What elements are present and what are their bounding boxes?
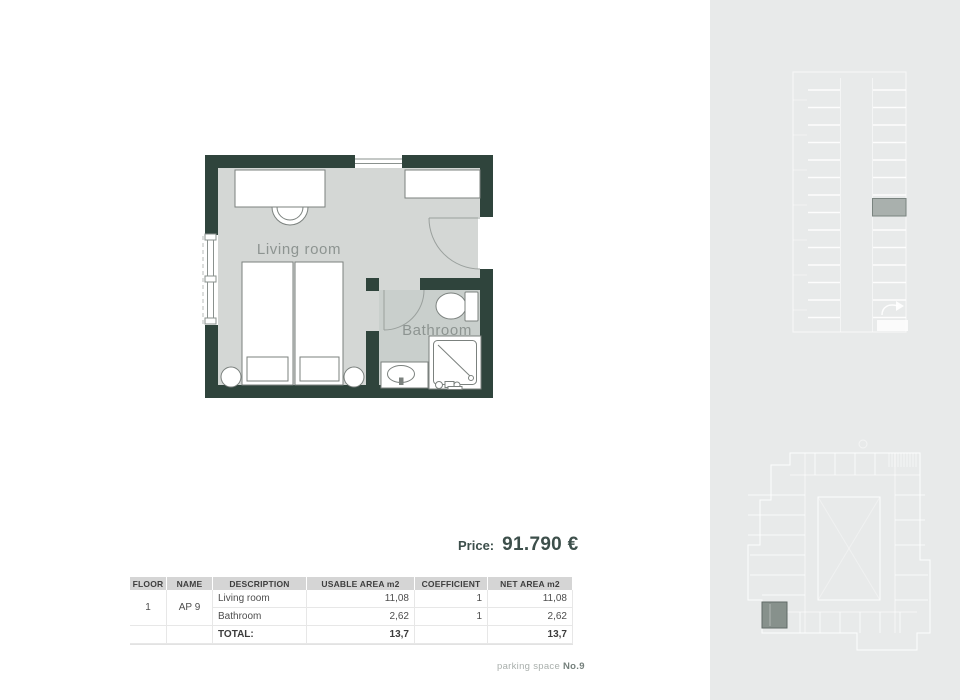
pillow-2	[300, 357, 339, 381]
col-header-coefficient: COEFFICIENT	[415, 577, 488, 590]
minimap-stairs-hatch	[889, 453, 916, 467]
highlighted-parking-space	[873, 199, 907, 217]
wardrobe	[405, 170, 480, 198]
sidebar	[710, 0, 960, 700]
bathroom-label: Bathroom	[402, 322, 472, 339]
cell-description: Living room	[213, 590, 307, 608]
parking-stalls-left	[808, 90, 840, 318]
cell-apartment: AP 9	[167, 590, 213, 626]
cell-usable-area: 11,08	[307, 590, 415, 608]
cell-total-net: 13,7	[488, 626, 573, 644]
cell-usable-area: 2,62	[307, 608, 415, 626]
cell-empty	[167, 626, 213, 644]
highlighted-unit	[762, 602, 787, 628]
cell-net-area: 2,62	[488, 608, 573, 626]
building-minimap	[735, 430, 955, 660]
cell-empty	[130, 626, 167, 644]
col-header-net-area: NET AREA m2	[488, 577, 573, 590]
nightstand-left	[221, 367, 241, 387]
parking-space-caption: parking space No.9	[497, 661, 585, 672]
pillow-1	[247, 357, 288, 381]
apartment-floor-plan: Living room Bathroom	[190, 138, 510, 408]
nightstand-right	[344, 367, 364, 387]
entrance-arrow-icon	[882, 301, 904, 315]
cell-net-area: 11,08	[488, 590, 573, 608]
col-header-usable-area: USABLE AREA m2	[307, 577, 415, 590]
living-room-label: Living room	[257, 241, 341, 258]
parking-lot-diagram	[780, 60, 920, 345]
price-value: 91.790 €	[502, 534, 578, 556]
cell-empty	[415, 626, 488, 644]
shower	[429, 336, 481, 390]
parking-space-label: parking space	[497, 661, 563, 672]
price-block: Price: 91.790 €	[458, 534, 579, 556]
parking-stalls-outer	[793, 100, 807, 310]
area-table: FLOOR NAME DESCRIPTION USABLE AREA m2 CO…	[130, 577, 573, 645]
price-label: Price:	[458, 538, 494, 553]
col-header-description: DESCRIPTION	[213, 577, 307, 590]
cell-description: Bathroom	[213, 608, 307, 626]
brochure-page: Living room Bathroom Price: 91.790 € FLO…	[0, 0, 960, 700]
col-header-floor: FLOOR	[130, 577, 167, 590]
cell-total-label: TOTAL:	[213, 626, 307, 644]
parking-space-number: No.9	[563, 661, 585, 672]
toilet	[436, 292, 478, 321]
col-header-name: NAME	[167, 577, 213, 590]
cell-total-usable: 13,7	[307, 626, 415, 644]
cell-coefficient: 1	[415, 608, 488, 626]
sink	[381, 362, 428, 388]
cell-floor: 1	[130, 590, 167, 626]
cell-coefficient: 1	[415, 590, 488, 608]
desk	[235, 170, 325, 207]
